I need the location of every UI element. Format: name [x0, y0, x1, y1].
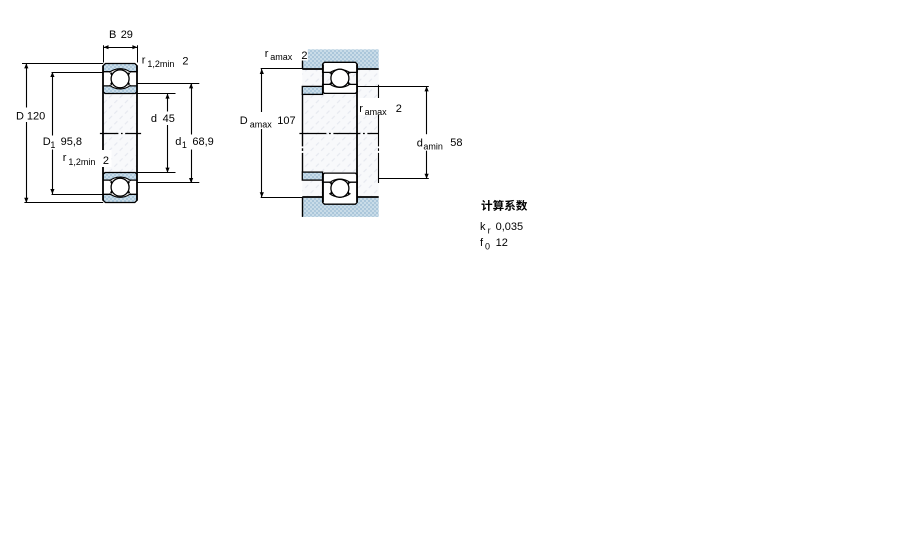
svg-text:r: r [142, 55, 146, 67]
svg-text:2: 2 [103, 155, 109, 167]
svg-text:1,2min: 1,2min [68, 157, 95, 167]
svg-text:B: B [109, 29, 116, 41]
svg-text:d: d [151, 113, 157, 125]
svg-text:amax: amax [270, 52, 293, 62]
svg-text:2: 2 [301, 50, 307, 62]
svg-text:1: 1 [182, 140, 187, 150]
svg-text:0,035: 0,035 [496, 221, 524, 233]
svg-text:r: r [265, 48, 269, 60]
svg-text:29: 29 [121, 29, 133, 41]
svg-text:D: D [16, 110, 24, 122]
svg-text:68,9: 68,9 [192, 136, 213, 148]
svg-text:45: 45 [163, 113, 175, 125]
svg-text:12: 12 [496, 237, 508, 249]
svg-text:2: 2 [396, 103, 402, 115]
svg-text:0: 0 [485, 241, 490, 251]
svg-text:amin: amin [423, 141, 443, 151]
svg-text:D: D [240, 115, 248, 127]
svg-text:1: 1 [50, 140, 55, 150]
svg-text:95,8: 95,8 [61, 136, 82, 148]
svg-text:k: k [480, 221, 486, 233]
svg-text:r: r [488, 226, 491, 236]
svg-text:2: 2 [182, 56, 188, 68]
svg-text:120: 120 [27, 110, 45, 122]
svg-text:r: r [359, 103, 363, 115]
svg-text:amax: amax [365, 107, 388, 117]
svg-text:107: 107 [277, 115, 295, 127]
svg-text:1,2min: 1,2min [147, 59, 174, 69]
svg-text:d: d [175, 136, 181, 148]
svg-text:d: d [417, 137, 423, 149]
svg-text:amax: amax [250, 119, 273, 129]
svg-text:r: r [63, 152, 67, 164]
svg-text:58: 58 [450, 137, 462, 149]
